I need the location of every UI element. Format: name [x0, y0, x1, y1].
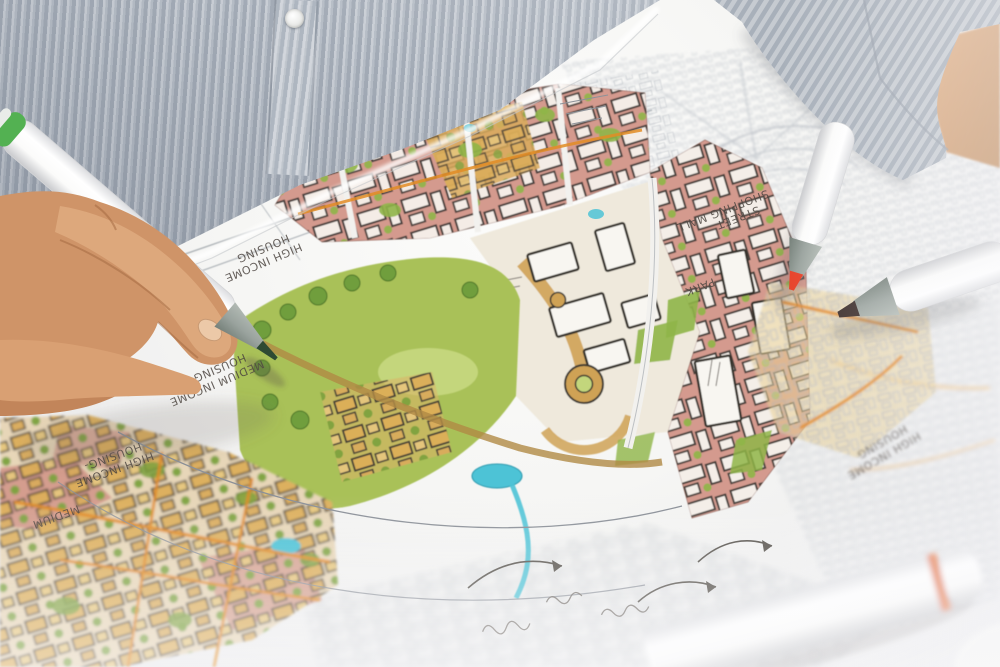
left-hand	[0, 191, 238, 416]
hand-with-pen	[0, 0, 1000, 667]
photo-scene: HIGH INCOME HOUSING- MEDIUM MEDIUM INCOM…	[0, 0, 1000, 667]
pen-tip-shadow	[241, 353, 288, 392]
